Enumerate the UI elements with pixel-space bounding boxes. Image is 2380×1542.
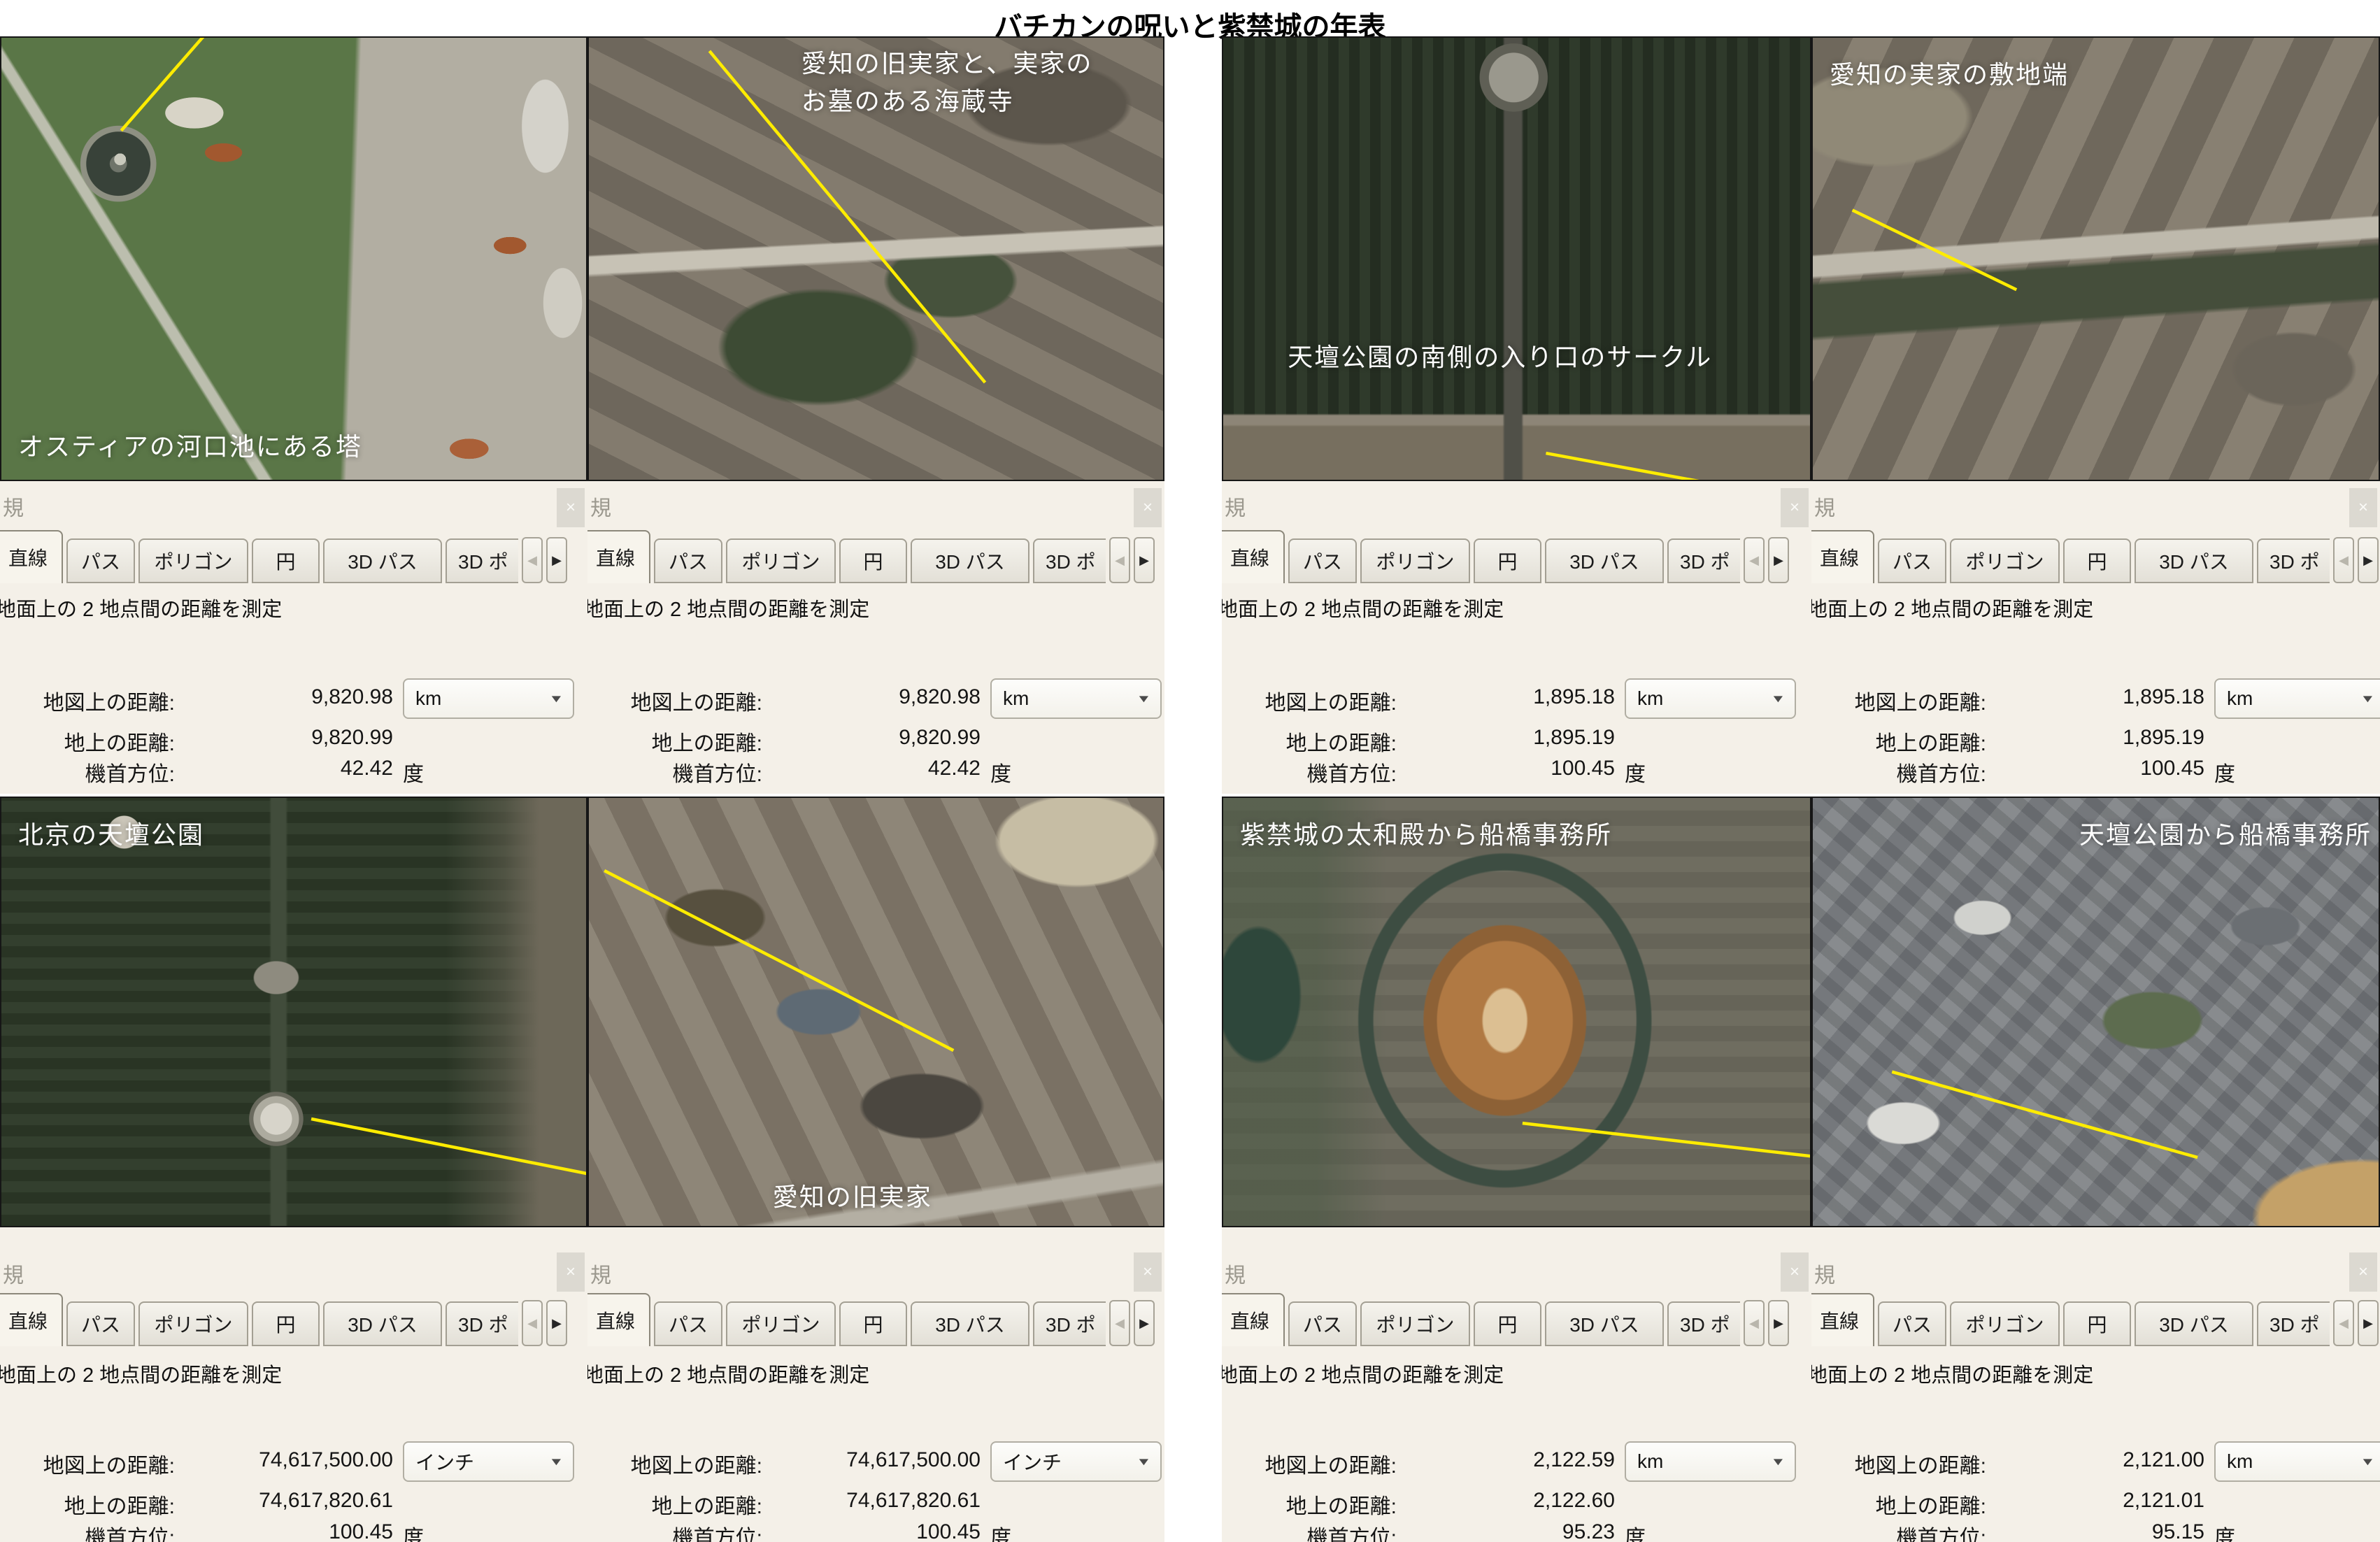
ruler-window-title-fragment: 規: [1814, 491, 1835, 522]
unit-dropdown-value: インチ: [1003, 1448, 1062, 1476]
degree-unit-label: 度: [990, 757, 1011, 787]
map-distance-value: 9,820.98: [183, 685, 393, 709]
ground-distance-label: 地上の距離:: [587, 726, 762, 757]
tab-3d-polygon[interactable]: 3D ポ: [446, 1301, 518, 1346]
tab-scroll-left-icon[interactable]: ◀: [522, 537, 543, 583]
tab-3d-polygon[interactable]: 3D ポ: [1667, 538, 1740, 583]
measure-description: 地面上の 2 地点間の距離を測定: [587, 1359, 869, 1388]
map-distance-label: 地図上の距離:: [0, 685, 175, 716]
measurement-line: [1, 798, 586, 1226]
tab-3d-path[interactable]: 3D パス: [323, 1301, 442, 1346]
map-distance-row: 地図上の距離: 74,617,500.00 インチ ▼: [587, 1448, 1164, 1479]
ruler-window-title-fragment: 規: [590, 491, 611, 522]
tab-path[interactable]: パス: [1878, 1301, 1946, 1346]
quad-card: 紫禁城の太和殿から船橋事務所 規 × 直線 パス ポリゴン 円 3D パス 3D…: [1222, 797, 1811, 1542]
ruler-panel: 規 × 直線 パス ポリゴン 円 3D パス 3D ポ ◀ ▶ 地面上の 2 地…: [1811, 481, 2380, 794]
ruler-tab-strip: 直線 パス ポリゴン 円 3D パス 3D ポ ◀ ▶: [587, 527, 1155, 583]
map-distance-label: 地図上の距離:: [1222, 685, 1397, 716]
ruler-tab-strip: 直線 パス ポリゴン 円 3D パス 3D ポ ◀ ▶: [1222, 527, 1789, 583]
ruler-panel: 規 × 直線 パス ポリゴン 円 3D パス 3D ポ ◀ ▶ 地面上の 2 地…: [1811, 1227, 2380, 1542]
tab-path[interactable]: パス: [1288, 1301, 1357, 1346]
ground-distance-label: 地上の距離:: [1222, 726, 1397, 757]
heading-row: 機首方位: 42.42 度: [0, 757, 587, 787]
quad-card: 天壇公園の南側の入り口のサークル 規 × 直線 パス ポリゴン 円 3D パス …: [1222, 36, 1811, 794]
measure-description: 地面上の 2 地点間の距離を測定: [1811, 1359, 2093, 1388]
tab-circle[interactable]: 円: [252, 538, 320, 583]
map-distance-value: 2,121.00: [1995, 1448, 2204, 1472]
degree-unit-label: 度: [403, 1520, 424, 1542]
unit-dropdown[interactable]: インチ ▼: [403, 1441, 574, 1482]
map-distance-value: 1,895.18: [1405, 685, 1615, 709]
map-view[interactable]: 天壇公園から船橋事務所: [1811, 797, 2380, 1227]
tab-3d-polygon[interactable]: 3D ポ: [1667, 1301, 1740, 1346]
ground-distance-value: 1,895.19: [1405, 726, 1615, 750]
ground-distance-row: 地上の距離: 74,617,820.61: [587, 1489, 1164, 1520]
ruler-window-title-fragment: 規: [590, 1258, 611, 1289]
tab-scroll-left-icon[interactable]: ◀: [2333, 537, 2354, 583]
map-distance-value: 1,895.18: [1995, 685, 2204, 709]
heading-value: 100.45: [1995, 757, 2204, 780]
ruler-window-title-fragment: 規: [1225, 491, 1246, 522]
ground-distance-row: 地上の距離: 2,122.60: [1222, 1489, 1811, 1520]
tab-path[interactable]: パス: [1288, 538, 1357, 583]
unit-dropdown[interactable]: km ▼: [990, 678, 1162, 719]
unit-dropdown-value: km: [1003, 687, 1029, 710]
degree-unit-label: 度: [403, 757, 424, 787]
tab-circle[interactable]: 円: [2063, 1301, 2131, 1346]
heading-row: 機首方位: 100.45 度: [1811, 757, 2380, 787]
map-caption: 愛知の実家の敷地端: [1830, 56, 2069, 94]
unit-dropdown[interactable]: km ▼: [1625, 1441, 1796, 1482]
map-caption: 天壇公園の南側の入り口のサークル: [1288, 338, 1712, 376]
ground-distance-row: 地上の距離: 9,820.99: [587, 726, 1164, 757]
close-icon[interactable]: ×: [1134, 488, 1162, 527]
tab-3d-path[interactable]: 3D パス: [911, 1301, 1029, 1346]
tab-scroll-right-icon[interactable]: ▶: [1134, 537, 1155, 583]
tab-3d-path[interactable]: 3D パス: [1545, 538, 1664, 583]
ground-distance-value: 2,122.60: [1405, 1489, 1615, 1513]
ground-distance-label: 地上の距離:: [0, 726, 175, 757]
measurement-line: [1223, 798, 1810, 1226]
close-icon[interactable]: ×: [1781, 488, 1809, 527]
ground-distance-value: 74,617,820.61: [771, 1489, 981, 1513]
tab-polygon[interactable]: ポリゴン: [1950, 1301, 2060, 1346]
map-caption: 天壇公園から船橋事務所: [2079, 816, 2372, 854]
map-distance-row: 地図上の距離: 1,895.18 km ▼: [1811, 685, 2380, 716]
tab-3d-polygon[interactable]: 3D ポ: [446, 538, 518, 583]
tab-3d-polygon[interactable]: 3D ポ: [2257, 1301, 2330, 1346]
tab-scroll-right-icon[interactable]: ▶: [2358, 1300, 2379, 1346]
heading-row: 機首方位: 100.45 度: [0, 1520, 587, 1542]
heading-label: 機首方位:: [587, 757, 762, 787]
dropdown-arrow-icon: ▼: [1136, 1456, 1151, 1468]
tab-path[interactable]: パス: [654, 538, 722, 583]
ruler-tab-strip: 直線 パス ポリゴン 円 3D パス 3D ポ ◀ ▶: [1222, 1290, 1789, 1346]
tab-3d-path[interactable]: 3D パス: [911, 538, 1029, 583]
degree-unit-label: 度: [1625, 1520, 1646, 1542]
tab-scroll-right-icon[interactable]: ▶: [2358, 537, 2379, 583]
tab-line[interactable]: 直線: [0, 530, 63, 583]
close-icon[interactable]: ×: [2349, 488, 2377, 527]
tab-scroll-left-icon[interactable]: ◀: [2333, 1300, 2354, 1346]
ruler-tab-strip: 直線 パス ポリゴン 円 3D パス 3D ポ ◀ ▶: [1811, 1290, 2379, 1346]
map-distance-label: 地図上の距離:: [1222, 1448, 1397, 1479]
heading-row: 機首方位: 42.42 度: [587, 757, 1164, 787]
map-distance-value: 9,820.98: [771, 685, 981, 709]
map-caption: オスティアの河口池にある塔: [18, 428, 362, 466]
measurement-line: [1813, 798, 2379, 1226]
map-distance-row: 地図上の距離: 1,895.18 km ▼: [1222, 685, 1811, 716]
ground-distance-label: 地上の距離:: [1222, 1489, 1397, 1520]
measurement-line: [1, 38, 586, 480]
map-view[interactable]: 愛知の実家の敷地端: [1811, 36, 2380, 481]
close-icon[interactable]: ×: [1781, 1252, 1809, 1292]
tab-scroll-right-icon[interactable]: ▶: [546, 537, 567, 583]
ruler-tab-strip: 直線 パス ポリゴン 円 3D パス 3D ポ ◀ ▶: [0, 527, 567, 583]
heading-label: 機首方位:: [1811, 757, 1986, 787]
dropdown-arrow-icon: ▼: [548, 1456, 564, 1468]
tab-line[interactable]: 直線: [1811, 1293, 1874, 1346]
map-view[interactable]: 天壇公園の南側の入り口のサークル: [1222, 36, 1811, 481]
tab-scroll-left-icon[interactable]: ◀: [522, 1300, 543, 1346]
measurement-line: [589, 798, 1163, 1226]
tab-line[interactable]: 直線: [1811, 530, 1874, 583]
tab-circle[interactable]: 円: [1474, 1301, 1541, 1346]
unit-dropdown[interactable]: インチ ▼: [990, 1441, 1162, 1482]
tab-3d-path[interactable]: 3D パス: [2135, 538, 2253, 583]
map-caption: 紫禁城の太和殿から船橋事務所: [1240, 816, 1612, 854]
ground-distance-value: 1,895.19: [1995, 726, 2204, 750]
heading-label: 機首方位:: [0, 757, 175, 787]
close-icon[interactable]: ×: [1134, 1252, 1162, 1292]
tab-scroll-right-icon[interactable]: ▶: [1768, 537, 1789, 583]
tab-3d-path[interactable]: 3D パス: [323, 538, 442, 583]
heading-label: 機首方位:: [1222, 757, 1397, 787]
map-distance-row: 地図上の距離: 9,820.98 km ▼: [0, 685, 587, 716]
tab-circle[interactable]: 円: [1474, 538, 1541, 583]
heading-row: 機首方位: 100.45 度: [1222, 757, 1811, 787]
tab-polygon[interactable]: ポリゴン: [726, 1301, 836, 1346]
map-view[interactable]: 愛知の旧実家: [587, 797, 1164, 1227]
heading-value: 95.23: [1405, 1520, 1615, 1542]
measurement-line: [1813, 38, 2379, 480]
dropdown-arrow-icon: ▼: [2360, 1456, 2375, 1468]
tab-scroll-left-icon[interactable]: ◀: [1744, 1300, 1765, 1346]
ground-distance-row: 地上の距離: 74,617,820.61: [0, 1489, 587, 1520]
heading-label: 機首方位:: [1222, 1520, 1397, 1542]
unit-dropdown[interactable]: km ▼: [1625, 678, 1796, 719]
ground-distance-label: 地上の距離:: [0, 1489, 175, 1520]
tab-path[interactable]: パス: [66, 1301, 135, 1346]
tab-polygon[interactable]: ポリゴン: [1360, 1301, 1470, 1346]
map-distance-value: 74,617,500.00: [771, 1448, 981, 1472]
unit-dropdown-value: インチ: [415, 1448, 474, 1476]
map-distance-row: 地図上の距離: 2,121.00 km ▼: [1811, 1448, 2380, 1479]
tab-3d-polygon[interactable]: 3D ポ: [1033, 1301, 1106, 1346]
ground-distance-row: 地上の距離: 1,895.19: [1811, 726, 2380, 757]
tab-circle[interactable]: 円: [839, 538, 907, 583]
tab-polygon[interactable]: ポリゴン: [726, 538, 836, 583]
dropdown-arrow-icon: ▼: [1770, 693, 1786, 705]
ruler-panel: 規 × 直線 パス ポリゴン 円 3D パス 3D ポ ◀ ▶ 地面上の 2 地…: [587, 1227, 1164, 1542]
ruler-window-title-fragment: 規: [1225, 1258, 1246, 1289]
degree-unit-label: 度: [2214, 1520, 2235, 1542]
unit-dropdown-value: km: [1637, 687, 1663, 710]
tab-line[interactable]: 直線: [1222, 1293, 1285, 1346]
tab-line[interactable]: 直線: [0, 1293, 63, 1346]
measure-description: 地面上の 2 地点間の距離を測定: [1222, 593, 1504, 622]
tab-line[interactable]: 直線: [587, 1293, 650, 1346]
map-distance-row: 地図上の距離: 2,122.59 km ▼: [1222, 1448, 1811, 1479]
tab-polygon[interactable]: ポリゴン: [1950, 538, 2060, 583]
heading-value: 100.45: [183, 1520, 393, 1542]
unit-dropdown[interactable]: km ▼: [2214, 1441, 2380, 1482]
tab-circle[interactable]: 円: [839, 1301, 907, 1346]
degree-unit-label: 度: [990, 1520, 1011, 1542]
map-distance-label: 地図上の距離:: [0, 1448, 175, 1479]
unit-dropdown-value: km: [2227, 1450, 2253, 1473]
map-distance-label: 地図上の距離:: [1811, 685, 1986, 716]
unit-dropdown[interactable]: km ▼: [2214, 678, 2380, 719]
map-distance-value: 74,617,500.00: [183, 1448, 393, 1472]
tab-circle[interactable]: 円: [2063, 538, 2131, 583]
heading-row: 機首方位: 95.23 度: [1222, 1520, 1811, 1542]
tab-circle[interactable]: 円: [252, 1301, 320, 1346]
close-icon[interactable]: ×: [2349, 1252, 2377, 1292]
heading-label: 機首方位:: [587, 1520, 762, 1542]
map-distance-row: 地図上の距離: 74,617,500.00 インチ ▼: [0, 1448, 587, 1479]
dropdown-arrow-icon: ▼: [2360, 693, 2375, 705]
tab-line[interactable]: 直線: [587, 530, 650, 583]
measure-description: 地面上の 2 地点間の距離を測定: [587, 593, 869, 622]
unit-dropdown-value: km: [415, 687, 441, 710]
ground-distance-label: 地上の距離:: [587, 1489, 762, 1520]
quad-card: オスティアの河口池にある塔 規 × 直線 パス ポリゴン 円 3D パス 3D …: [0, 36, 587, 794]
measure-description: 地面上の 2 地点間の距離を測定: [0, 593, 282, 622]
map-distance-label: 地図上の距離:: [587, 685, 762, 716]
tab-3d-polygon[interactable]: 3D ポ: [2257, 538, 2330, 583]
map-view[interactable]: オスティアの河口池にある塔: [0, 36, 587, 481]
ground-distance-label: 地上の距離:: [1811, 1489, 1986, 1520]
dropdown-arrow-icon: ▼: [1136, 693, 1151, 705]
heading-value: 42.42: [183, 757, 393, 780]
map-view[interactable]: 紫禁城の太和殿から船橋事務所: [1222, 797, 1811, 1227]
ruler-panel: 規 × 直線 パス ポリゴン 円 3D パス 3D ポ ◀ ▶ 地面上の 2 地…: [1222, 1227, 1811, 1542]
map-distance-value: 2,122.59: [1405, 1448, 1615, 1472]
ground-distance-row: 地上の距離: 2,121.01: [1811, 1489, 2380, 1520]
map-distance-label: 地図上の距離:: [1811, 1448, 1986, 1479]
heading-label: 機首方位:: [1811, 1520, 1986, 1542]
heading-value: 42.42: [771, 757, 981, 780]
tab-scroll-left-icon[interactable]: ◀: [1744, 537, 1765, 583]
tab-scroll-right-icon[interactable]: ▶: [546, 1300, 567, 1346]
ground-distance-label: 地上の距離:: [1811, 726, 1986, 757]
ground-distance-value: 2,121.01: [1995, 1489, 2204, 1513]
heading-label: 機首方位:: [0, 1520, 175, 1542]
tab-scroll-left-icon[interactable]: ◀: [1109, 1300, 1130, 1346]
ruler-tab-strip: 直線 パス ポリゴン 円 3D パス 3D ポ ◀ ▶: [1811, 527, 2379, 583]
quad-card: 天壇公園から船橋事務所 規 × 直線 パス ポリゴン 円 3D パス 3D ポ …: [1811, 797, 2380, 1542]
tab-polygon[interactable]: ポリゴン: [138, 538, 248, 583]
ruler-panel: 規 × 直線 パス ポリゴン 円 3D パス 3D ポ ◀ ▶ 地面上の 2 地…: [0, 1227, 587, 1542]
ground-distance-value: 74,617,820.61: [183, 1489, 393, 1513]
tab-scroll-right-icon[interactable]: ▶: [1768, 1300, 1789, 1346]
composite-screenshot: バチカンの呪いと紫禁城の年表 オスティアの河口池にある塔 規 × 直線 パス ポ…: [0, 0, 2380, 1542]
unit-dropdown[interactable]: km ▼: [403, 678, 574, 719]
ruler-window-title-fragment: 規: [1814, 1258, 1835, 1289]
tab-line[interactable]: 直線: [1222, 530, 1285, 583]
ruler-window-title-fragment: 規: [3, 491, 24, 522]
ruler-tab-strip: 直線 パス ポリゴン 円 3D パス 3D ポ ◀ ▶: [0, 1290, 567, 1346]
tab-polygon[interactable]: ポリゴン: [138, 1301, 248, 1346]
quad-card: 愛知の実家の敷地端 規 × 直線 パス ポリゴン 円 3D パス 3D ポ ◀ …: [1811, 36, 2380, 794]
ruler-panel: 規 × 直線 パス ポリゴン 円 3D パス 3D ポ ◀ ▶ 地面上の 2 地…: [587, 481, 1164, 794]
close-icon[interactable]: ×: [557, 488, 585, 527]
tab-path[interactable]: パス: [66, 538, 135, 583]
heading-value: 100.45: [771, 1520, 981, 1542]
degree-unit-label: 度: [1625, 757, 1646, 787]
quad-card: 愛知の旧実家と、実家の お墓のある海蔵寺 規 × 直線 パス ポリゴン 円 3D…: [587, 36, 1164, 794]
map-view[interactable]: 北京の天壇公園: [0, 797, 587, 1227]
measure-description: 地面上の 2 地点間の距離を測定: [0, 1359, 282, 1388]
tab-3d-path[interactable]: 3D パス: [2135, 1301, 2253, 1346]
tab-scroll-left-icon[interactable]: ◀: [1109, 537, 1130, 583]
map-distance-row: 地図上の距離: 9,820.98 km ▼: [587, 685, 1164, 716]
heading-value: 95.15: [1995, 1520, 2204, 1542]
map-view[interactable]: 愛知の旧実家と、実家の お墓のある海蔵寺: [587, 36, 1164, 481]
ruler-window-title-fragment: 規: [3, 1258, 24, 1289]
tab-path[interactable]: パス: [654, 1301, 722, 1346]
dropdown-arrow-icon: ▼: [548, 693, 564, 705]
heading-value: 100.45: [1405, 757, 1615, 780]
ruler-tab-strip: 直線 パス ポリゴン 円 3D パス 3D ポ ◀ ▶: [587, 1290, 1155, 1346]
measure-description: 地面上の 2 地点間の距離を測定: [1811, 593, 2093, 622]
dropdown-arrow-icon: ▼: [1770, 1456, 1786, 1468]
ground-distance-value: 9,820.99: [771, 726, 981, 750]
ground-distance-value: 9,820.99: [183, 726, 393, 750]
quad-card: 愛知の旧実家 規 × 直線 パス ポリゴン 円 3D パス 3D ポ ◀ ▶ 地…: [587, 797, 1164, 1542]
tab-3d-path[interactable]: 3D パス: [1545, 1301, 1664, 1346]
measure-description: 地面上の 2 地点間の距離を測定: [1222, 1359, 1504, 1388]
ground-distance-row: 地上の距離: 1,895.19: [1222, 726, 1811, 757]
ruler-panel: 規 × 直線 パス ポリゴン 円 3D パス 3D ポ ◀ ▶ 地面上の 2 地…: [1222, 481, 1811, 794]
close-icon[interactable]: ×: [557, 1252, 585, 1292]
unit-dropdown-value: km: [1637, 1450, 1663, 1473]
map-distance-label: 地図上の距離:: [587, 1448, 762, 1479]
unit-dropdown-value: km: [2227, 687, 2253, 710]
ruler-panel: 規 × 直線 パス ポリゴン 円 3D パス 3D ポ ◀ ▶ 地面上の 2 地…: [0, 481, 587, 794]
map-caption: 北京の天壇公園: [18, 816, 204, 854]
map-caption: 愛知の旧実家と、実家の お墓のある海蔵寺: [801, 45, 1093, 120]
ground-distance-row: 地上の距離: 9,820.99: [0, 726, 587, 757]
tab-polygon[interactable]: ポリゴン: [1360, 538, 1470, 583]
map-caption: 愛知の旧実家: [773, 1178, 932, 1216]
tab-scroll-right-icon[interactable]: ▶: [1134, 1300, 1155, 1346]
tab-3d-polygon[interactable]: 3D ポ: [1033, 538, 1106, 583]
tab-path[interactable]: パス: [1878, 538, 1946, 583]
measurement-line: [1223, 38, 1810, 480]
heading-row: 機首方位: 95.15 度: [1811, 1520, 2380, 1542]
degree-unit-label: 度: [2214, 757, 2235, 787]
quad-card: 北京の天壇公園 規 × 直線 パス ポリゴン 円 3D パス 3D ポ ◀ ▶ …: [0, 797, 587, 1542]
heading-row: 機首方位: 100.45 度: [587, 1520, 1164, 1542]
